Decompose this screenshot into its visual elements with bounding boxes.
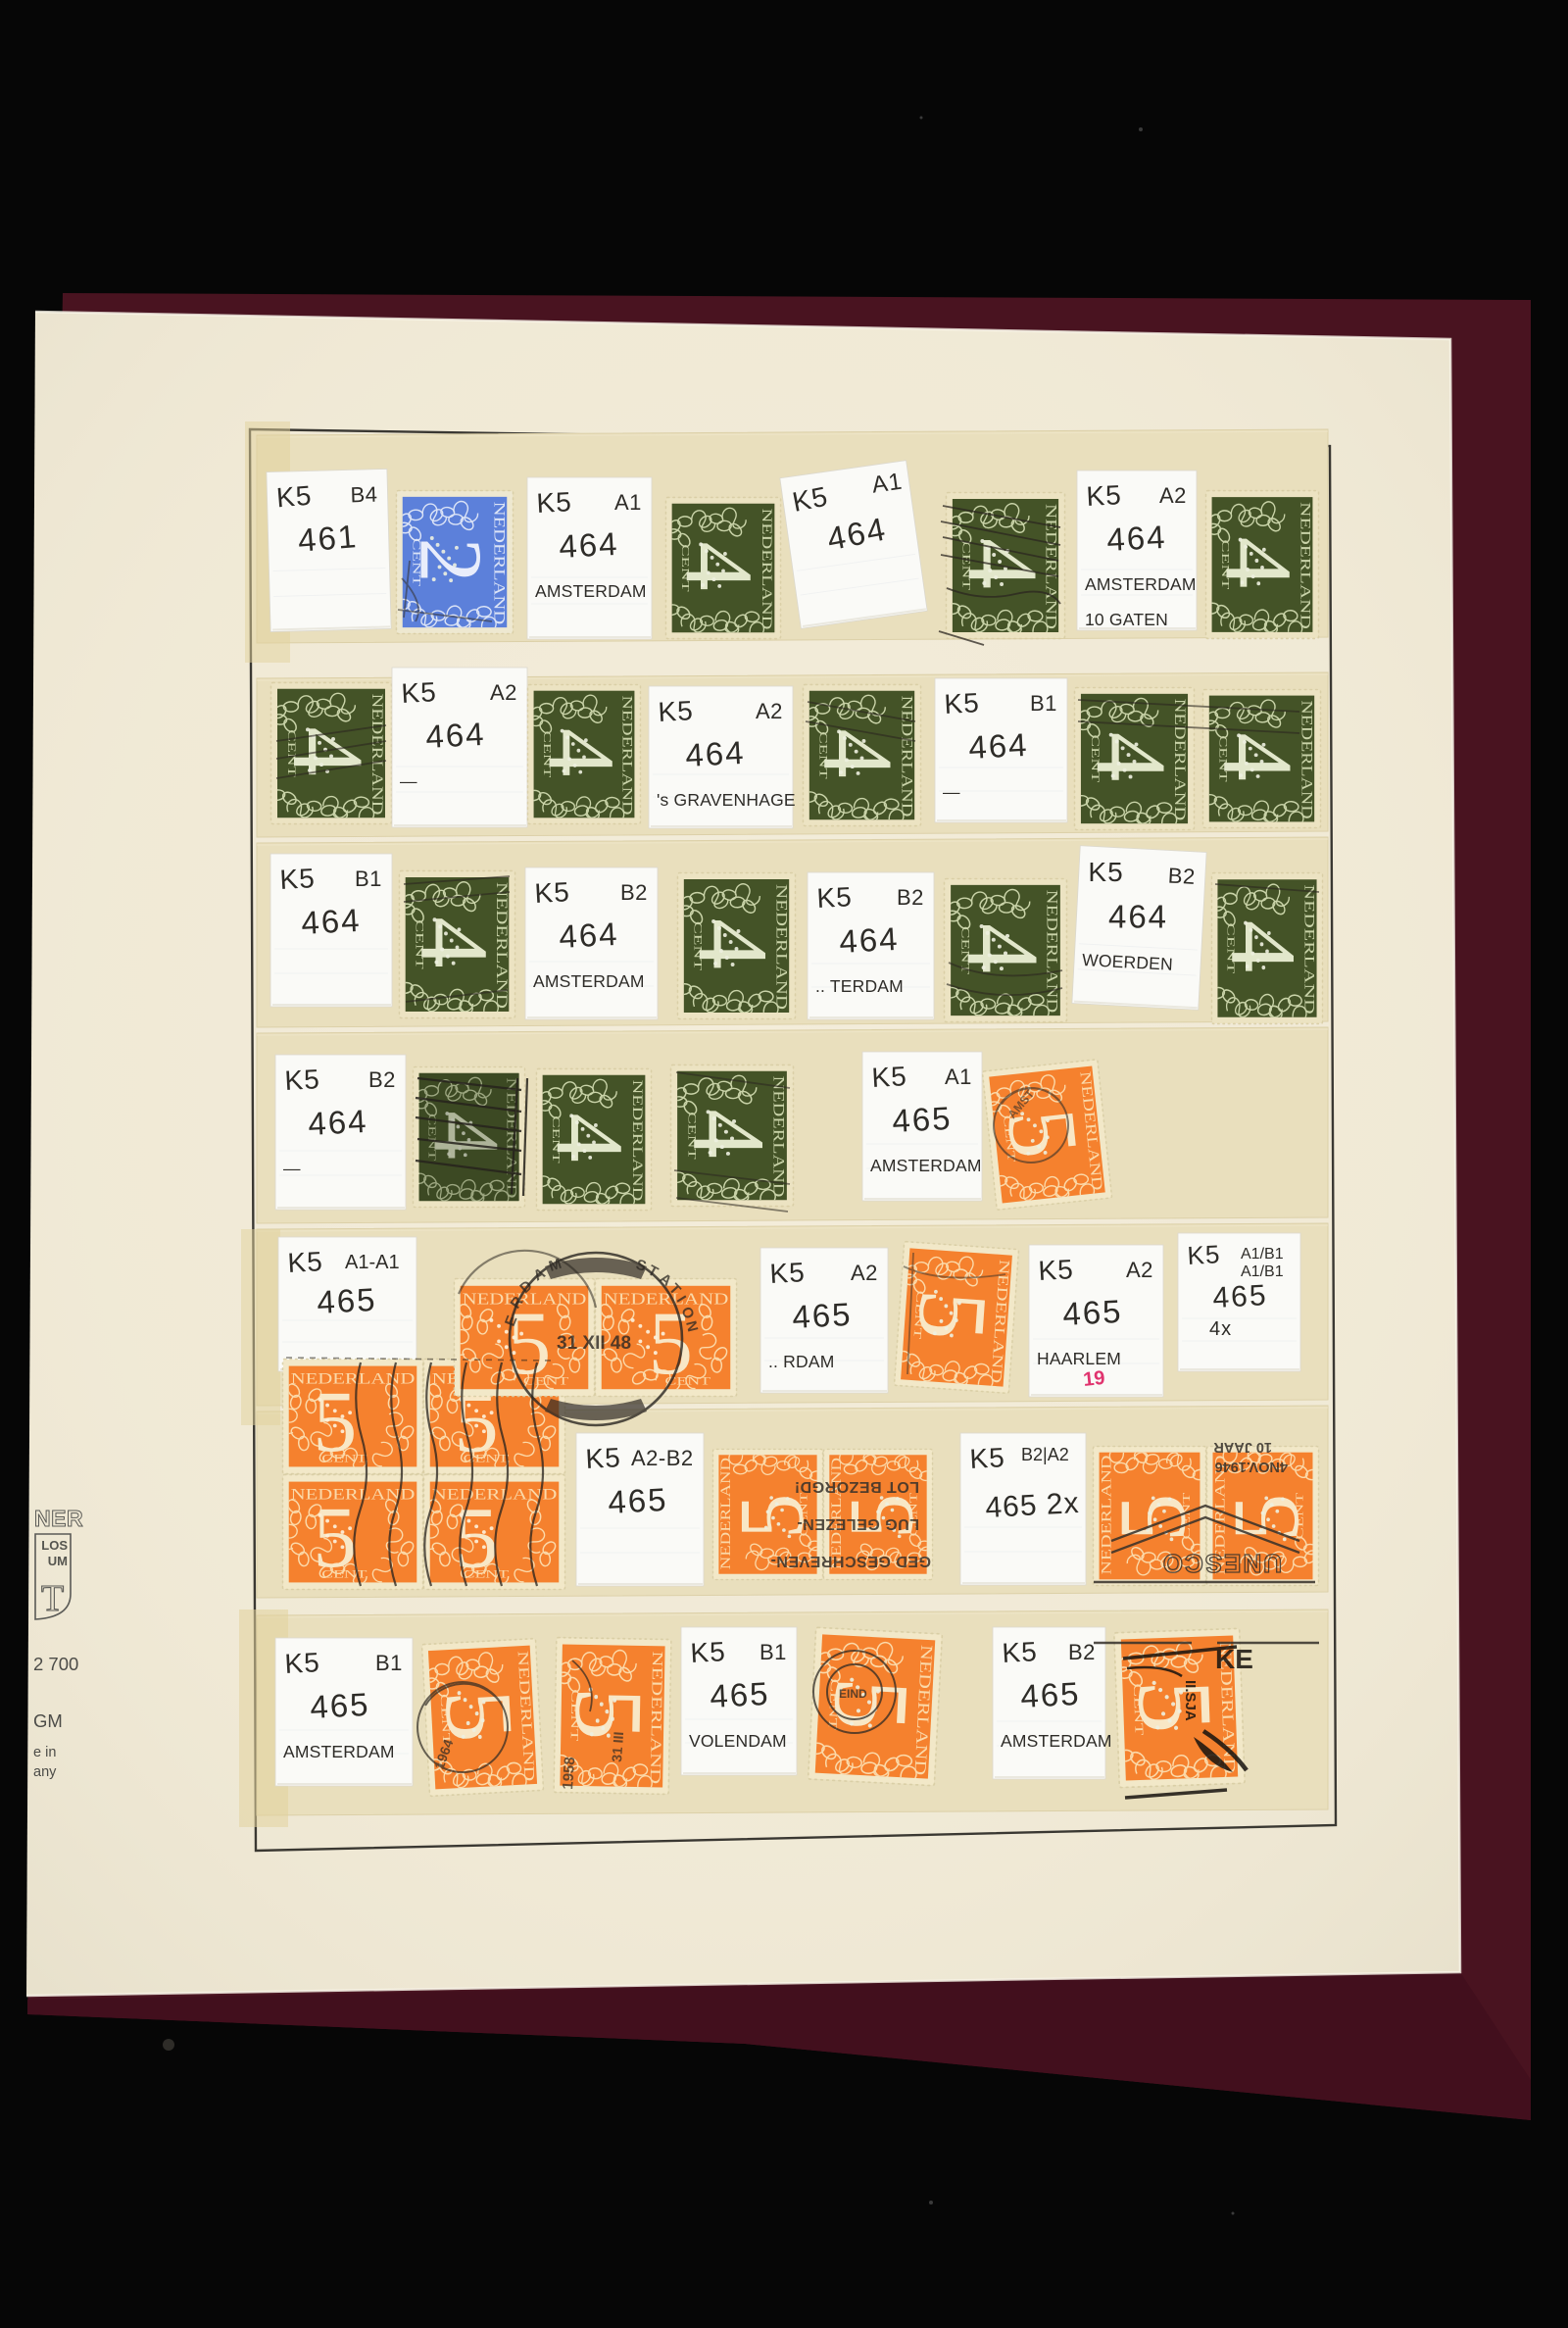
svg-text:K5: K5 xyxy=(769,1257,807,1289)
svg-text:.. RDAM: .. RDAM xyxy=(768,1352,835,1371)
svg-text:T: T xyxy=(41,1578,64,1619)
svg-text:B2|A2: B2|A2 xyxy=(1021,1445,1069,1464)
svg-text:K5: K5 xyxy=(690,1636,727,1668)
svg-text:AMSTERDAM: AMSTERDAM xyxy=(535,581,647,601)
svg-text:AMSTERDAM: AMSTERDAM xyxy=(283,1742,395,1761)
svg-text:HAARLEM: HAARLEM xyxy=(1037,1349,1121,1368)
svg-text:1958: 1958 xyxy=(560,1757,578,1790)
svg-text:464: 464 xyxy=(967,726,1029,766)
svg-text:K5: K5 xyxy=(534,876,571,909)
svg-text:464: 464 xyxy=(1105,519,1167,558)
svg-text:4x: 4x xyxy=(1209,1318,1232,1340)
svg-text:LOT BEZORGD!: LOT BEZORGD! xyxy=(794,1478,919,1495)
svg-text:UM: UM xyxy=(48,1554,68,1568)
svg-text:A1: A1 xyxy=(945,1065,972,1089)
svg-text:K5: K5 xyxy=(1086,479,1123,512)
svg-text:465 2x: 465 2x xyxy=(985,1487,1081,1524)
svg-text:K5: K5 xyxy=(944,687,981,719)
svg-text:—: — xyxy=(283,1159,301,1178)
svg-text:K5: K5 xyxy=(536,486,573,519)
svg-text:A2: A2 xyxy=(851,1261,878,1285)
svg-text:LUG GELEZEN-: LUG GELEZEN- xyxy=(797,1515,919,1532)
svg-text:B4: B4 xyxy=(350,482,378,508)
svg-text:19: 19 xyxy=(1082,1367,1105,1391)
svg-text:NER: NER xyxy=(34,1506,83,1531)
svg-text:B1: B1 xyxy=(375,1651,403,1675)
svg-text:A2-B2: A2-B2 xyxy=(631,1446,694,1470)
svg-text:UNESCO: UNESCO xyxy=(1161,1549,1282,1578)
svg-text:464: 464 xyxy=(558,916,619,955)
svg-text:465: 465 xyxy=(309,1686,370,1725)
svg-text:A1: A1 xyxy=(614,490,642,515)
svg-text:464: 464 xyxy=(300,902,362,941)
svg-text:K5: K5 xyxy=(658,695,695,727)
svg-text:K5: K5 xyxy=(275,480,314,514)
svg-text:K5: K5 xyxy=(284,1647,321,1679)
svg-text:AMSTERDAM: AMSTERDAM xyxy=(870,1156,982,1175)
svg-text:KE: KE xyxy=(1215,1644,1253,1674)
svg-text:AMSTERDAM: AMSTERDAM xyxy=(1085,574,1197,594)
svg-text:10 JAAR: 10 JAAR xyxy=(1213,1439,1272,1455)
svg-text:464: 464 xyxy=(424,716,486,755)
svg-text:VOLENDAM: VOLENDAM xyxy=(689,1731,787,1751)
svg-text:A1-A1: A1-A1 xyxy=(345,1252,400,1273)
svg-text:K5: K5 xyxy=(287,1246,324,1278)
svg-text:465: 465 xyxy=(316,1281,377,1320)
svg-text:B2: B2 xyxy=(1068,1640,1096,1664)
svg-text:K5: K5 xyxy=(969,1442,1006,1474)
svg-text:AMSTERDAM: AMSTERDAM xyxy=(1001,1731,1112,1751)
svg-text:B2: B2 xyxy=(1167,863,1196,888)
svg-text:465: 465 xyxy=(1061,1293,1123,1332)
svg-text:464: 464 xyxy=(838,920,900,960)
svg-text:—: — xyxy=(943,782,960,802)
svg-text:II.SJA: II.SJA xyxy=(1182,1680,1199,1721)
svg-text:K5: K5 xyxy=(279,863,317,895)
svg-text:4NOV.1946: 4NOV.1946 xyxy=(1215,1459,1288,1474)
svg-text:A2: A2 xyxy=(1126,1258,1153,1282)
svg-text:465: 465 xyxy=(709,1675,770,1714)
svg-text:.. TERDAM: .. TERDAM xyxy=(815,976,904,996)
svg-text:B2: B2 xyxy=(897,885,924,910)
svg-text:464: 464 xyxy=(1108,898,1168,934)
svg-text:465: 465 xyxy=(607,1481,668,1520)
svg-text:GED GESCHREVEN-: GED GESCHREVEN- xyxy=(770,1553,931,1569)
svg-text:31 XII 48: 31 XII 48 xyxy=(557,1333,631,1354)
svg-text:10 GATEN: 10 GATEN xyxy=(1085,610,1168,629)
svg-text:2 700: 2 700 xyxy=(33,1654,78,1674)
svg-text:—: — xyxy=(400,771,417,791)
svg-text:LOS: LOS xyxy=(41,1538,68,1553)
svg-text:K5: K5 xyxy=(1187,1239,1221,1270)
svg-text:A2: A2 xyxy=(1159,483,1187,508)
svg-text:B2: B2 xyxy=(368,1067,396,1092)
svg-text:EIND: EIND xyxy=(839,1687,867,1701)
svg-text:K5: K5 xyxy=(401,676,438,709)
svg-text:K5: K5 xyxy=(871,1061,908,1093)
svg-text:'s GRAVENHAGE: 's GRAVENHAGE xyxy=(657,790,796,810)
svg-text:465: 465 xyxy=(791,1296,853,1335)
svg-text:any: any xyxy=(33,1764,57,1780)
svg-text:K5: K5 xyxy=(284,1064,321,1096)
svg-text:465: 465 xyxy=(1212,1279,1269,1314)
svg-text:465: 465 xyxy=(1019,1675,1081,1714)
svg-text:e in: e in xyxy=(33,1745,56,1760)
svg-text:31 III: 31 III xyxy=(609,1731,626,1762)
svg-text:K5: K5 xyxy=(1038,1254,1075,1286)
svg-text:AMSTERDAM: AMSTERDAM xyxy=(533,971,645,991)
svg-text:A2: A2 xyxy=(490,680,517,705)
svg-text:B1: B1 xyxy=(1030,691,1057,716)
svg-text:A2: A2 xyxy=(756,699,783,723)
svg-text:464: 464 xyxy=(307,1103,368,1142)
svg-text:464: 464 xyxy=(684,734,746,773)
svg-text:K5: K5 xyxy=(1002,1636,1039,1668)
svg-text:A1/B1: A1/B1 xyxy=(1241,1246,1284,1263)
svg-text:B1: B1 xyxy=(759,1640,787,1664)
svg-text:K5: K5 xyxy=(816,881,854,914)
svg-text:GM: GM xyxy=(33,1710,63,1731)
svg-text:B1: B1 xyxy=(355,867,382,891)
svg-text:B2: B2 xyxy=(620,880,648,905)
svg-text:K5: K5 xyxy=(585,1442,622,1474)
svg-text:A1: A1 xyxy=(870,469,905,499)
svg-text:461: 461 xyxy=(297,518,360,559)
svg-text:A1/B1: A1/B1 xyxy=(1241,1263,1284,1280)
svg-text:K5: K5 xyxy=(1088,857,1123,887)
svg-text:464: 464 xyxy=(558,525,619,565)
svg-text:465: 465 xyxy=(891,1100,953,1139)
